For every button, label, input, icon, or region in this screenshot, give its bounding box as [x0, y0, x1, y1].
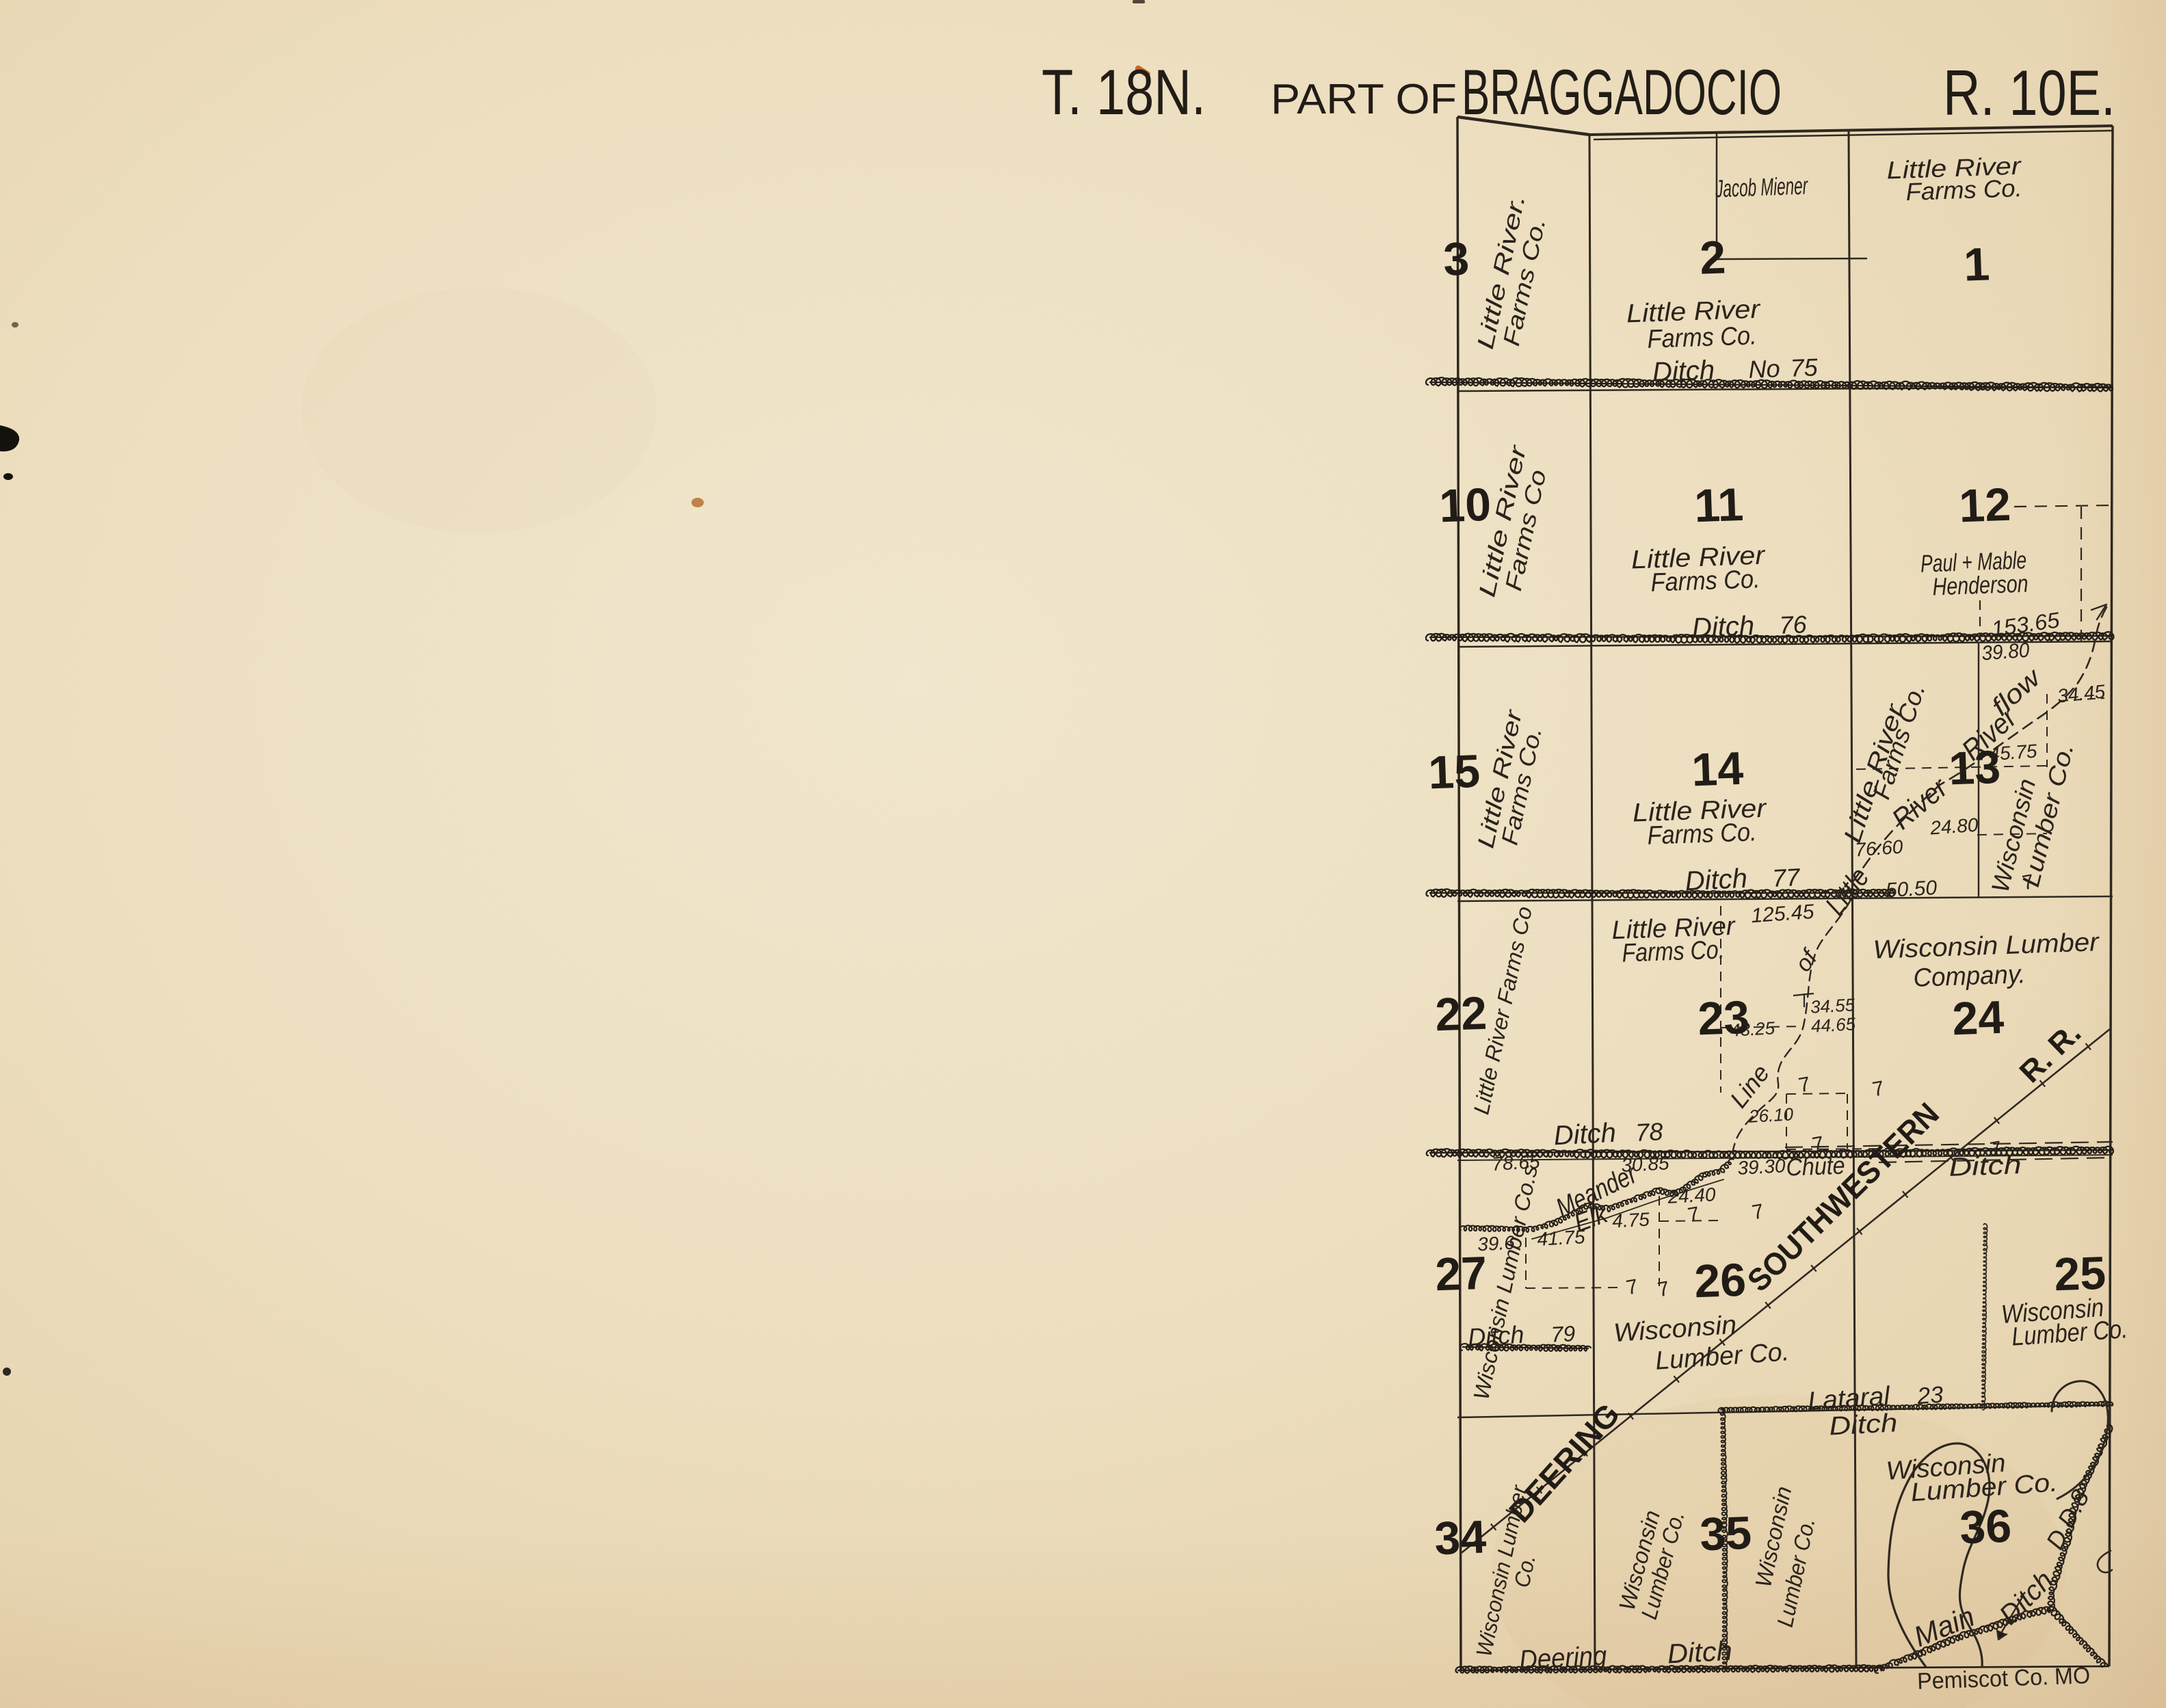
- svg-text:24: 24: [1951, 991, 2005, 1045]
- svg-text:Farms Co.: Farms Co.: [1647, 321, 1757, 354]
- svg-text:Ditch: Ditch: [1685, 864, 1748, 897]
- svg-text:35: 35: [1699, 1507, 1752, 1561]
- svg-text:27: 27: [1434, 1247, 1488, 1301]
- svg-text:Deering: Deering: [1518, 1641, 1607, 1676]
- svg-text:79: 79: [1550, 1321, 1576, 1347]
- svg-text:41.75: 41.75: [1537, 1226, 1586, 1250]
- svg-text:Jacob Miener: Jacob Miener: [1715, 172, 1809, 203]
- svg-text:Farms Co.: Farms Co.: [1622, 935, 1725, 968]
- svg-text:26.10: 26.10: [1747, 1104, 1794, 1126]
- svg-text:10: 10: [1438, 479, 1492, 533]
- svg-text:39.80: 39.80: [1981, 639, 2030, 665]
- svg-text:1: 1: [1963, 238, 1990, 291]
- svg-text:12: 12: [1958, 479, 2011, 533]
- svg-text:39.30: 39.30: [1737, 1155, 1786, 1179]
- svg-text:Ditch: Ditch: [1553, 1118, 1617, 1151]
- svg-text:34: 34: [1434, 1511, 1487, 1565]
- svg-text:75: 75: [1790, 353, 1819, 382]
- svg-text:R. 10E.: R. 10E.: [1943, 57, 2115, 129]
- svg-text:24.80: 24.80: [1929, 814, 1979, 839]
- svg-text:PART OF: PART OF: [1271, 76, 1457, 123]
- svg-text:4.75: 4.75: [1611, 1209, 1650, 1232]
- svg-text:Farms Co.: Farms Co.: [1650, 565, 1760, 598]
- svg-text:BRAGGADOCIO: BRAGGADOCIO: [1462, 56, 1782, 128]
- svg-text:76: 76: [1779, 610, 1808, 639]
- svg-text:Ditch: Ditch: [1949, 1151, 2022, 1182]
- svg-text:Ditch: Ditch: [1828, 1409, 1898, 1441]
- svg-text:Farms Co.: Farms Co.: [1905, 174, 2022, 206]
- svg-text:77: 77: [1771, 863, 1801, 892]
- svg-text:78: 78: [1635, 1117, 1663, 1147]
- svg-text:125.45: 125.45: [1750, 900, 1814, 927]
- svg-text:22: 22: [1434, 987, 1488, 1041]
- svg-text:23: 23: [1916, 1382, 1944, 1410]
- svg-text:44.65: 44.65: [1810, 1013, 1856, 1036]
- svg-text:Henderson: Henderson: [1932, 570, 2029, 601]
- svg-text:13: 13: [1948, 741, 2001, 795]
- svg-text:T. 18N.: T. 18N.: [1042, 56, 1206, 128]
- svg-text:11: 11: [1693, 479, 1744, 532]
- svg-text:3: 3: [1442, 232, 1470, 285]
- svg-text:36: 36: [1959, 1500, 2012, 1554]
- svg-text:Ditch: Ditch: [1691, 611, 1755, 643]
- svg-text:14: 14: [1691, 743, 1744, 797]
- svg-text:No: No: [1748, 354, 1780, 384]
- svg-text:2: 2: [1699, 231, 1726, 284]
- svg-text:26: 26: [1693, 1254, 1747, 1308]
- svg-text:Ditch: Ditch: [1652, 355, 1715, 387]
- svg-text:25: 25: [2053, 1247, 2106, 1301]
- svg-text:Company.: Company.: [1913, 960, 2026, 993]
- svg-text:15: 15: [1427, 745, 1481, 799]
- svg-text:50.50: 50.50: [1885, 877, 1938, 902]
- svg-text:Farms Co.: Farms Co.: [1647, 818, 1757, 851]
- svg-text:23: 23: [1697, 991, 1750, 1045]
